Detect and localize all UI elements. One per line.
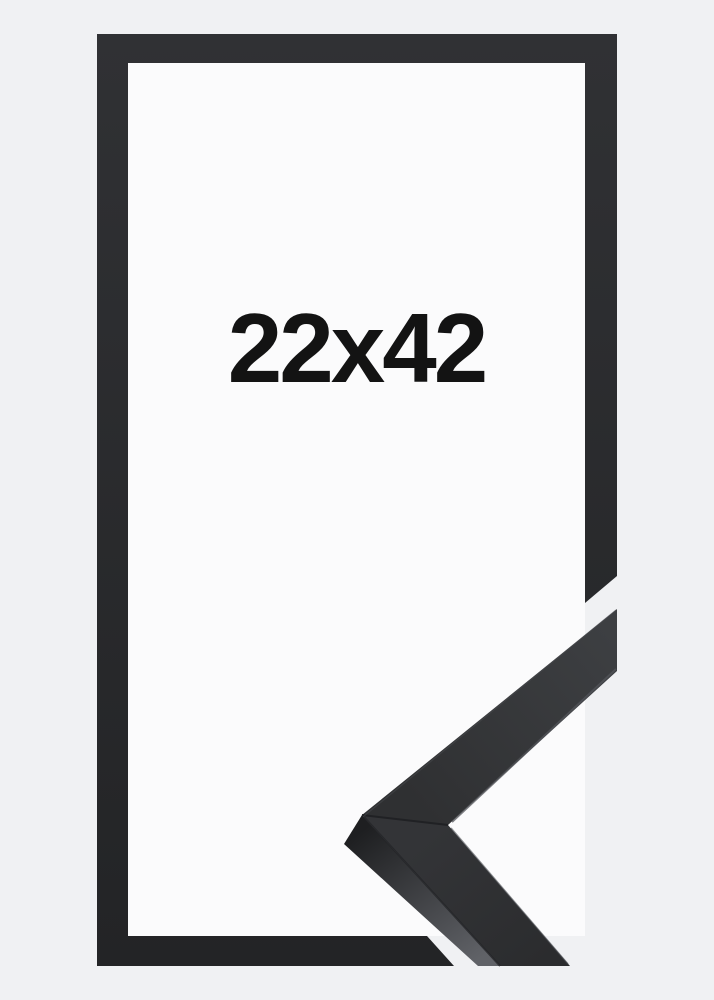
frame-bar-top (97, 34, 617, 63)
frame-product-photo: 22x42 (0, 0, 714, 1000)
frame-inner-area (128, 63, 585, 936)
frame-illustration (0, 0, 714, 1000)
frame-bar-bottom-cut (97, 936, 454, 966)
frame-bar-right-cut (585, 34, 617, 603)
size-label: 22x42 (128, 299, 585, 397)
frame-bar-left (97, 34, 128, 966)
